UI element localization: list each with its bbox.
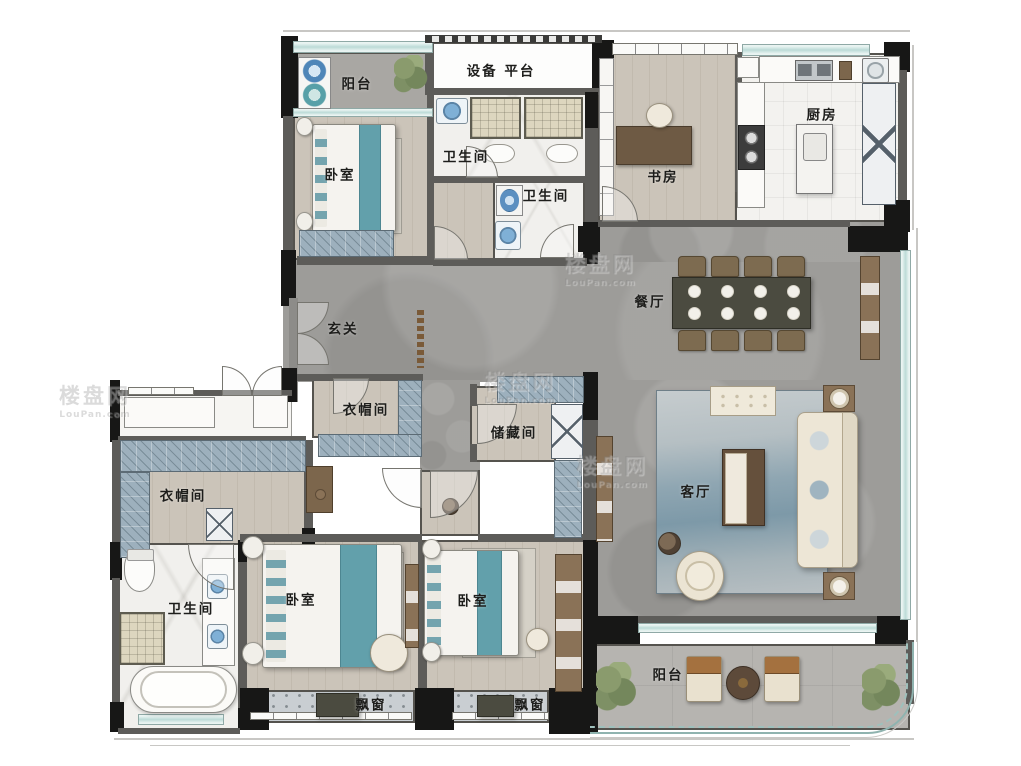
furniture-hatch-v [398, 380, 422, 437]
furniture-hatch-v [554, 460, 582, 538]
window [742, 44, 870, 56]
furniture-stove [738, 125, 765, 170]
furniture-shower [119, 612, 165, 665]
furniture-toilet-h [546, 144, 578, 163]
furniture-armchair [676, 551, 724, 601]
furniture-chair [777, 330, 805, 351]
wall-segment [114, 738, 914, 740]
room-label: 设备 平台 [467, 65, 536, 79]
furniture-chair [744, 330, 772, 351]
furniture-nstand [422, 642, 441, 662]
wall-segment [283, 116, 293, 258]
wall-segment [150, 745, 850, 746]
furniture-chair [744, 256, 772, 277]
room-label: 厨房 [807, 109, 838, 123]
furniture-ctable [722, 449, 765, 526]
room-label: 飘窗 [356, 699, 387, 713]
furniture-nstand [422, 539, 441, 559]
window [293, 108, 433, 117]
door-arc [382, 468, 422, 508]
furniture-counter [737, 57, 759, 78]
wall-segment [738, 220, 850, 227]
furniture-tub [130, 666, 237, 713]
furniture-hatch [318, 434, 422, 457]
furniture-rtable [726, 666, 760, 700]
furniture-plate [688, 307, 701, 320]
furniture-lampt [823, 385, 855, 412]
furniture-hatch-v [120, 472, 150, 558]
furniture-lounge [764, 656, 800, 702]
wall-segment [430, 176, 587, 183]
wall-segment [415, 688, 454, 730]
furniture-toilet [124, 550, 155, 592]
window [425, 35, 602, 43]
wall-segment [585, 92, 598, 130]
door-arc [252, 366, 282, 396]
furniture-washer [496, 185, 523, 216]
room-label: 衣帽间 [343, 404, 390, 418]
furniture-fridge [862, 58, 889, 83]
furniture-sideboard [860, 256, 880, 360]
room-label: 卧室 [325, 169, 356, 183]
window [638, 623, 877, 633]
wall-segment [283, 30, 910, 32]
furniture-washer2 [298, 57, 331, 109]
furniture-plate [787, 307, 800, 320]
room-label: 阳台 [342, 78, 373, 92]
furniture-sink [495, 221, 521, 250]
window [128, 387, 194, 395]
furniture-shower [524, 97, 583, 139]
furniture-counter [124, 397, 215, 428]
wall-segment [240, 688, 269, 730]
room-label: 飘窗 [515, 699, 546, 713]
door-arc [222, 366, 252, 396]
furniture-cabx [862, 83, 896, 205]
wall-segment [118, 728, 240, 734]
furniture-chair [678, 256, 706, 277]
wall-segment [470, 384, 477, 406]
furniture-table-d [316, 693, 359, 717]
room-label: 餐厅 [635, 296, 666, 310]
room-label: 玄关 [328, 323, 359, 337]
furniture-nstand [296, 212, 313, 231]
furniture-plant [394, 55, 428, 93]
furniture-plant [596, 662, 636, 712]
furniture-pot [658, 532, 681, 555]
wall-segment [470, 444, 477, 462]
furniture-counter [253, 395, 288, 428]
furniture-plate [754, 307, 767, 320]
furniture-chair [711, 330, 739, 351]
furniture-cabx [206, 508, 233, 541]
furniture-plate [787, 285, 800, 298]
wall-segment [848, 226, 908, 252]
wall-segment [638, 616, 877, 623]
room-label: 卫生间 [523, 190, 570, 204]
furniture-chair [777, 256, 805, 277]
floor-plan-page: 阳台卧室卫生间卫生间设备 平台书房厨房餐厅玄关衣帽间储藏间衣帽间客厅卫生间卧室卧… [0, 0, 1021, 766]
room-label: 卧室 [286, 594, 317, 608]
furniture-sideboard [596, 436, 613, 542]
room-label: 卫生间 [443, 151, 490, 165]
furniture-lampt [823, 572, 855, 600]
furniture-shower [470, 97, 521, 139]
wall-segment [112, 440, 120, 544]
furniture-hatch [120, 440, 306, 472]
furniture-dresser [839, 61, 852, 80]
furniture-bench [710, 386, 776, 416]
furniture-desk [616, 126, 692, 165]
wall-segment [916, 228, 918, 642]
furniture-cabx [551, 404, 583, 459]
furniture-sideboard [405, 564, 419, 648]
wall-segment [240, 534, 422, 542]
wall-segment [898, 70, 907, 204]
furniture-plate [688, 285, 701, 298]
room-hall-zone [283, 260, 908, 382]
furniture-table-d [477, 695, 514, 717]
furniture-chair [678, 330, 706, 351]
room-label: 客厅 [681, 486, 712, 500]
furniture-hatch [299, 230, 394, 257]
wall-segment [912, 45, 914, 230]
furniture-lounge [686, 656, 722, 702]
furniture-plate [754, 285, 767, 298]
furniture-ksink [795, 60, 833, 81]
wall-segment [297, 256, 433, 265]
furniture-chair-round [646, 103, 673, 128]
furniture-sofa [797, 412, 858, 568]
furniture-sink [207, 624, 228, 649]
furniture-sink [436, 98, 468, 124]
furniture-chair-round [370, 634, 408, 672]
furniture-island [796, 124, 833, 194]
room-label: 阳台 [653, 669, 684, 683]
furniture-plant [862, 664, 900, 712]
room-label: 卧室 [458, 595, 489, 609]
room-label: 储藏间 [491, 427, 538, 441]
window [900, 250, 911, 620]
wall-segment [583, 372, 598, 422]
furniture-plate [721, 307, 734, 320]
furniture-nstand [242, 536, 264, 559]
furniture-screen [417, 310, 424, 368]
furniture-sideboard [555, 554, 582, 692]
furniture-nstand [242, 642, 264, 665]
room-label: 衣帽间 [160, 490, 207, 504]
furniture-stool [315, 489, 326, 500]
window [138, 714, 224, 725]
furniture-hatch [497, 376, 584, 403]
furniture-nstand [296, 117, 313, 136]
furniture-plate [721, 285, 734, 298]
floor-plan-canvas: 阳台卧室卫生间卫生间设备 平台书房厨房餐厅玄关衣帽间储藏间衣帽间客厅卫生间卧室卧… [0, 0, 1021, 766]
furniture-chair [711, 256, 739, 277]
furniture-chair-round [526, 628, 549, 651]
window [293, 41, 433, 53]
room-label: 书房 [648, 171, 679, 185]
wall-segment [425, 88, 602, 95]
window [612, 43, 738, 55]
room-label: 卫生间 [168, 603, 215, 617]
